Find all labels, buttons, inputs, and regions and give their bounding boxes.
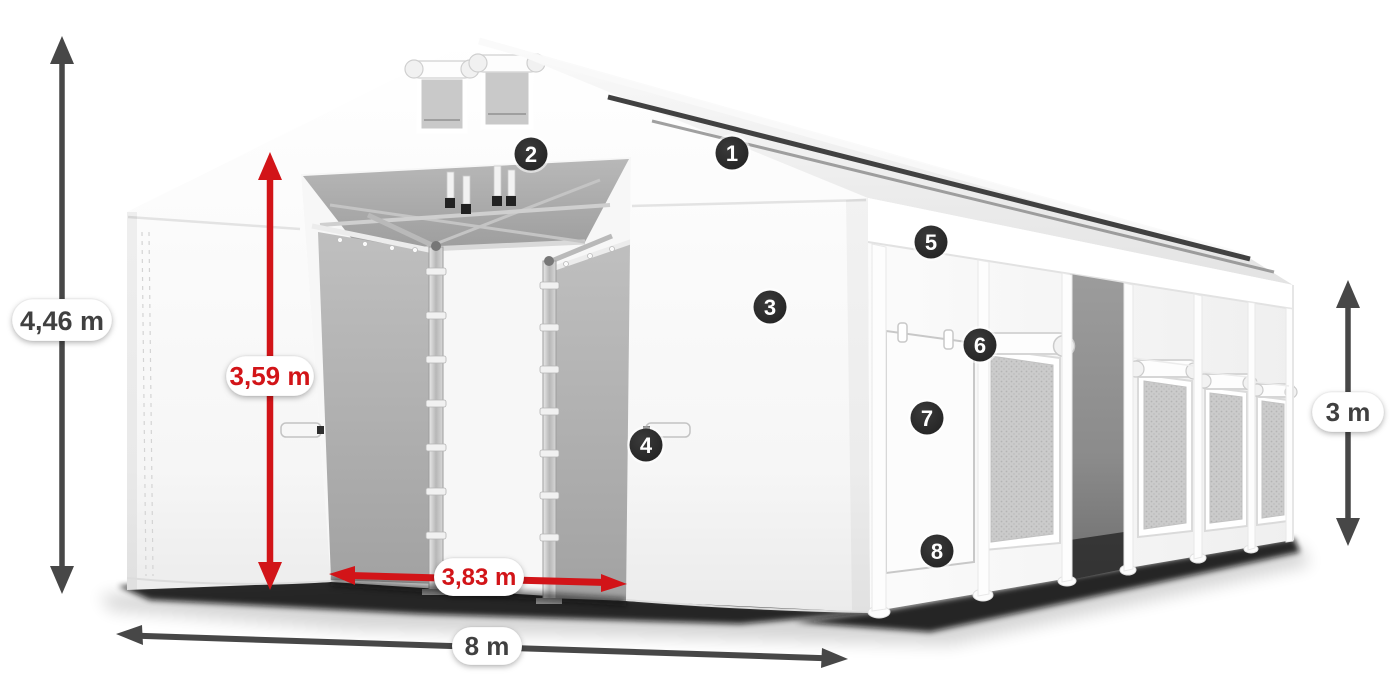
feature-marker-1[interactable]: 1 <box>715 136 750 171</box>
feature-marker-3[interactable]: 3 <box>753 290 788 325</box>
entrance-right-door-panel <box>546 240 636 601</box>
total-height-label: 4,46 m <box>20 306 104 336</box>
svg-text:5: 5 <box>925 230 937 255</box>
dimension-total-height: 4,46 m <box>12 36 112 594</box>
arrowhead-right-icon <box>821 648 848 668</box>
front-left-door-handle <box>281 423 324 437</box>
side-open-section <box>1070 274 1124 580</box>
feature-marker-2[interactable]: 2 <box>514 137 549 172</box>
svg-text:6: 6 <box>974 333 986 358</box>
svg-text:8: 8 <box>931 539 943 564</box>
entrance-left-door-panel <box>312 226 437 584</box>
arrowhead-up-icon <box>50 36 74 64</box>
arrowhead-up-icon <box>1336 280 1360 308</box>
tent-product-diagram: 4,46 m 3,59 m 3 m 3,83 m <box>0 0 1400 700</box>
entrance-width-label: 3,83 m <box>442 564 517 591</box>
feature-marker-4[interactable]: 4 <box>629 428 664 463</box>
feature-marker-8[interactable]: 8 <box>920 534 955 569</box>
svg-text:1: 1 <box>726 141 738 166</box>
mesh-window-2 <box>1128 360 1202 537</box>
svg-text:3: 3 <box>764 295 776 320</box>
dimension-side-height: 3 m <box>1312 280 1384 546</box>
svg-text:7: 7 <box>921 406 933 431</box>
total-width-label: 8 m <box>465 631 510 661</box>
feature-marker-7[interactable]: 7 <box>910 401 945 436</box>
arrowhead-left-icon <box>116 625 143 645</box>
arrowhead-down-icon <box>50 566 74 594</box>
entrance-interior <box>301 157 636 606</box>
feature-marker-5[interactable]: 5 <box>914 225 949 260</box>
entrance-height-label: 3,59 m <box>230 361 311 391</box>
arrowhead-down-icon <box>1336 518 1360 546</box>
side-height-label: 3 m <box>1326 397 1371 427</box>
svg-text:4: 4 <box>640 433 653 458</box>
svg-text:2: 2 <box>525 142 537 167</box>
feature-marker-6[interactable]: 6 <box>963 328 998 363</box>
